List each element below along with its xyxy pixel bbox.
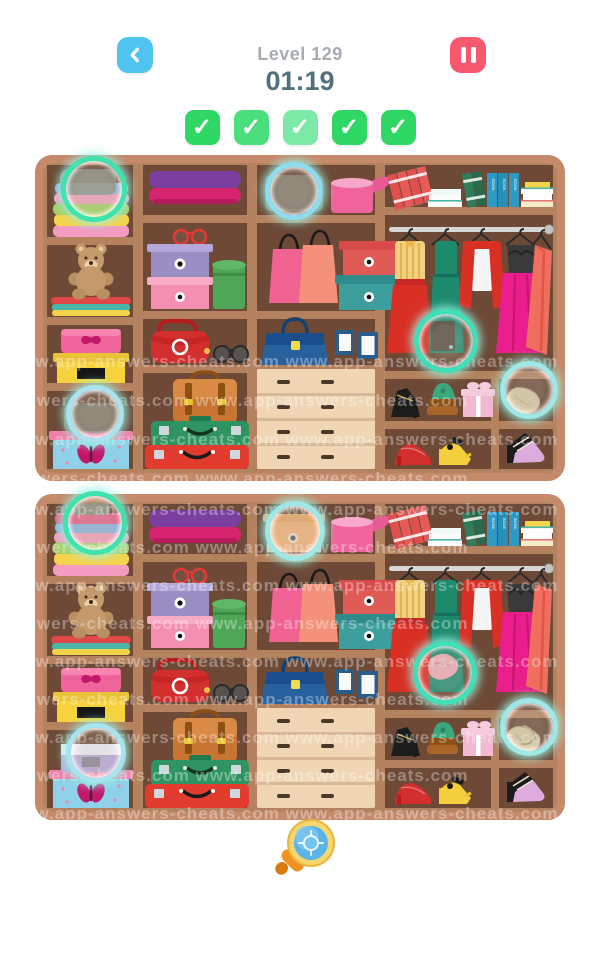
puzzle-image-top[interactable]: www.app-answers-cheats.com www.app-answe… xyxy=(35,155,565,481)
pause-button[interactable] xyxy=(450,37,486,73)
found-check-5: ✓ xyxy=(381,110,416,145)
wardrobe-illustration-bottom xyxy=(35,494,565,820)
level-title: Level 129 xyxy=(0,44,600,65)
hint-button[interactable] xyxy=(266,810,348,892)
found-check-1: ✓ xyxy=(185,110,220,145)
magnifier-crosshair-icon xyxy=(266,810,348,892)
timer: 01:19 xyxy=(0,66,600,97)
pause-icon xyxy=(458,47,478,63)
progress-checks: ✓✓✓✓✓ xyxy=(0,110,600,145)
wardrobe-illustration-top xyxy=(35,155,565,481)
found-check-2: ✓ xyxy=(234,110,269,145)
found-check-4: ✓ xyxy=(332,110,367,145)
found-check-3: ✓ xyxy=(283,110,318,145)
puzzle-image-bottom[interactable]: www.app-answers-cheats.com www.app-answe… xyxy=(35,494,565,820)
